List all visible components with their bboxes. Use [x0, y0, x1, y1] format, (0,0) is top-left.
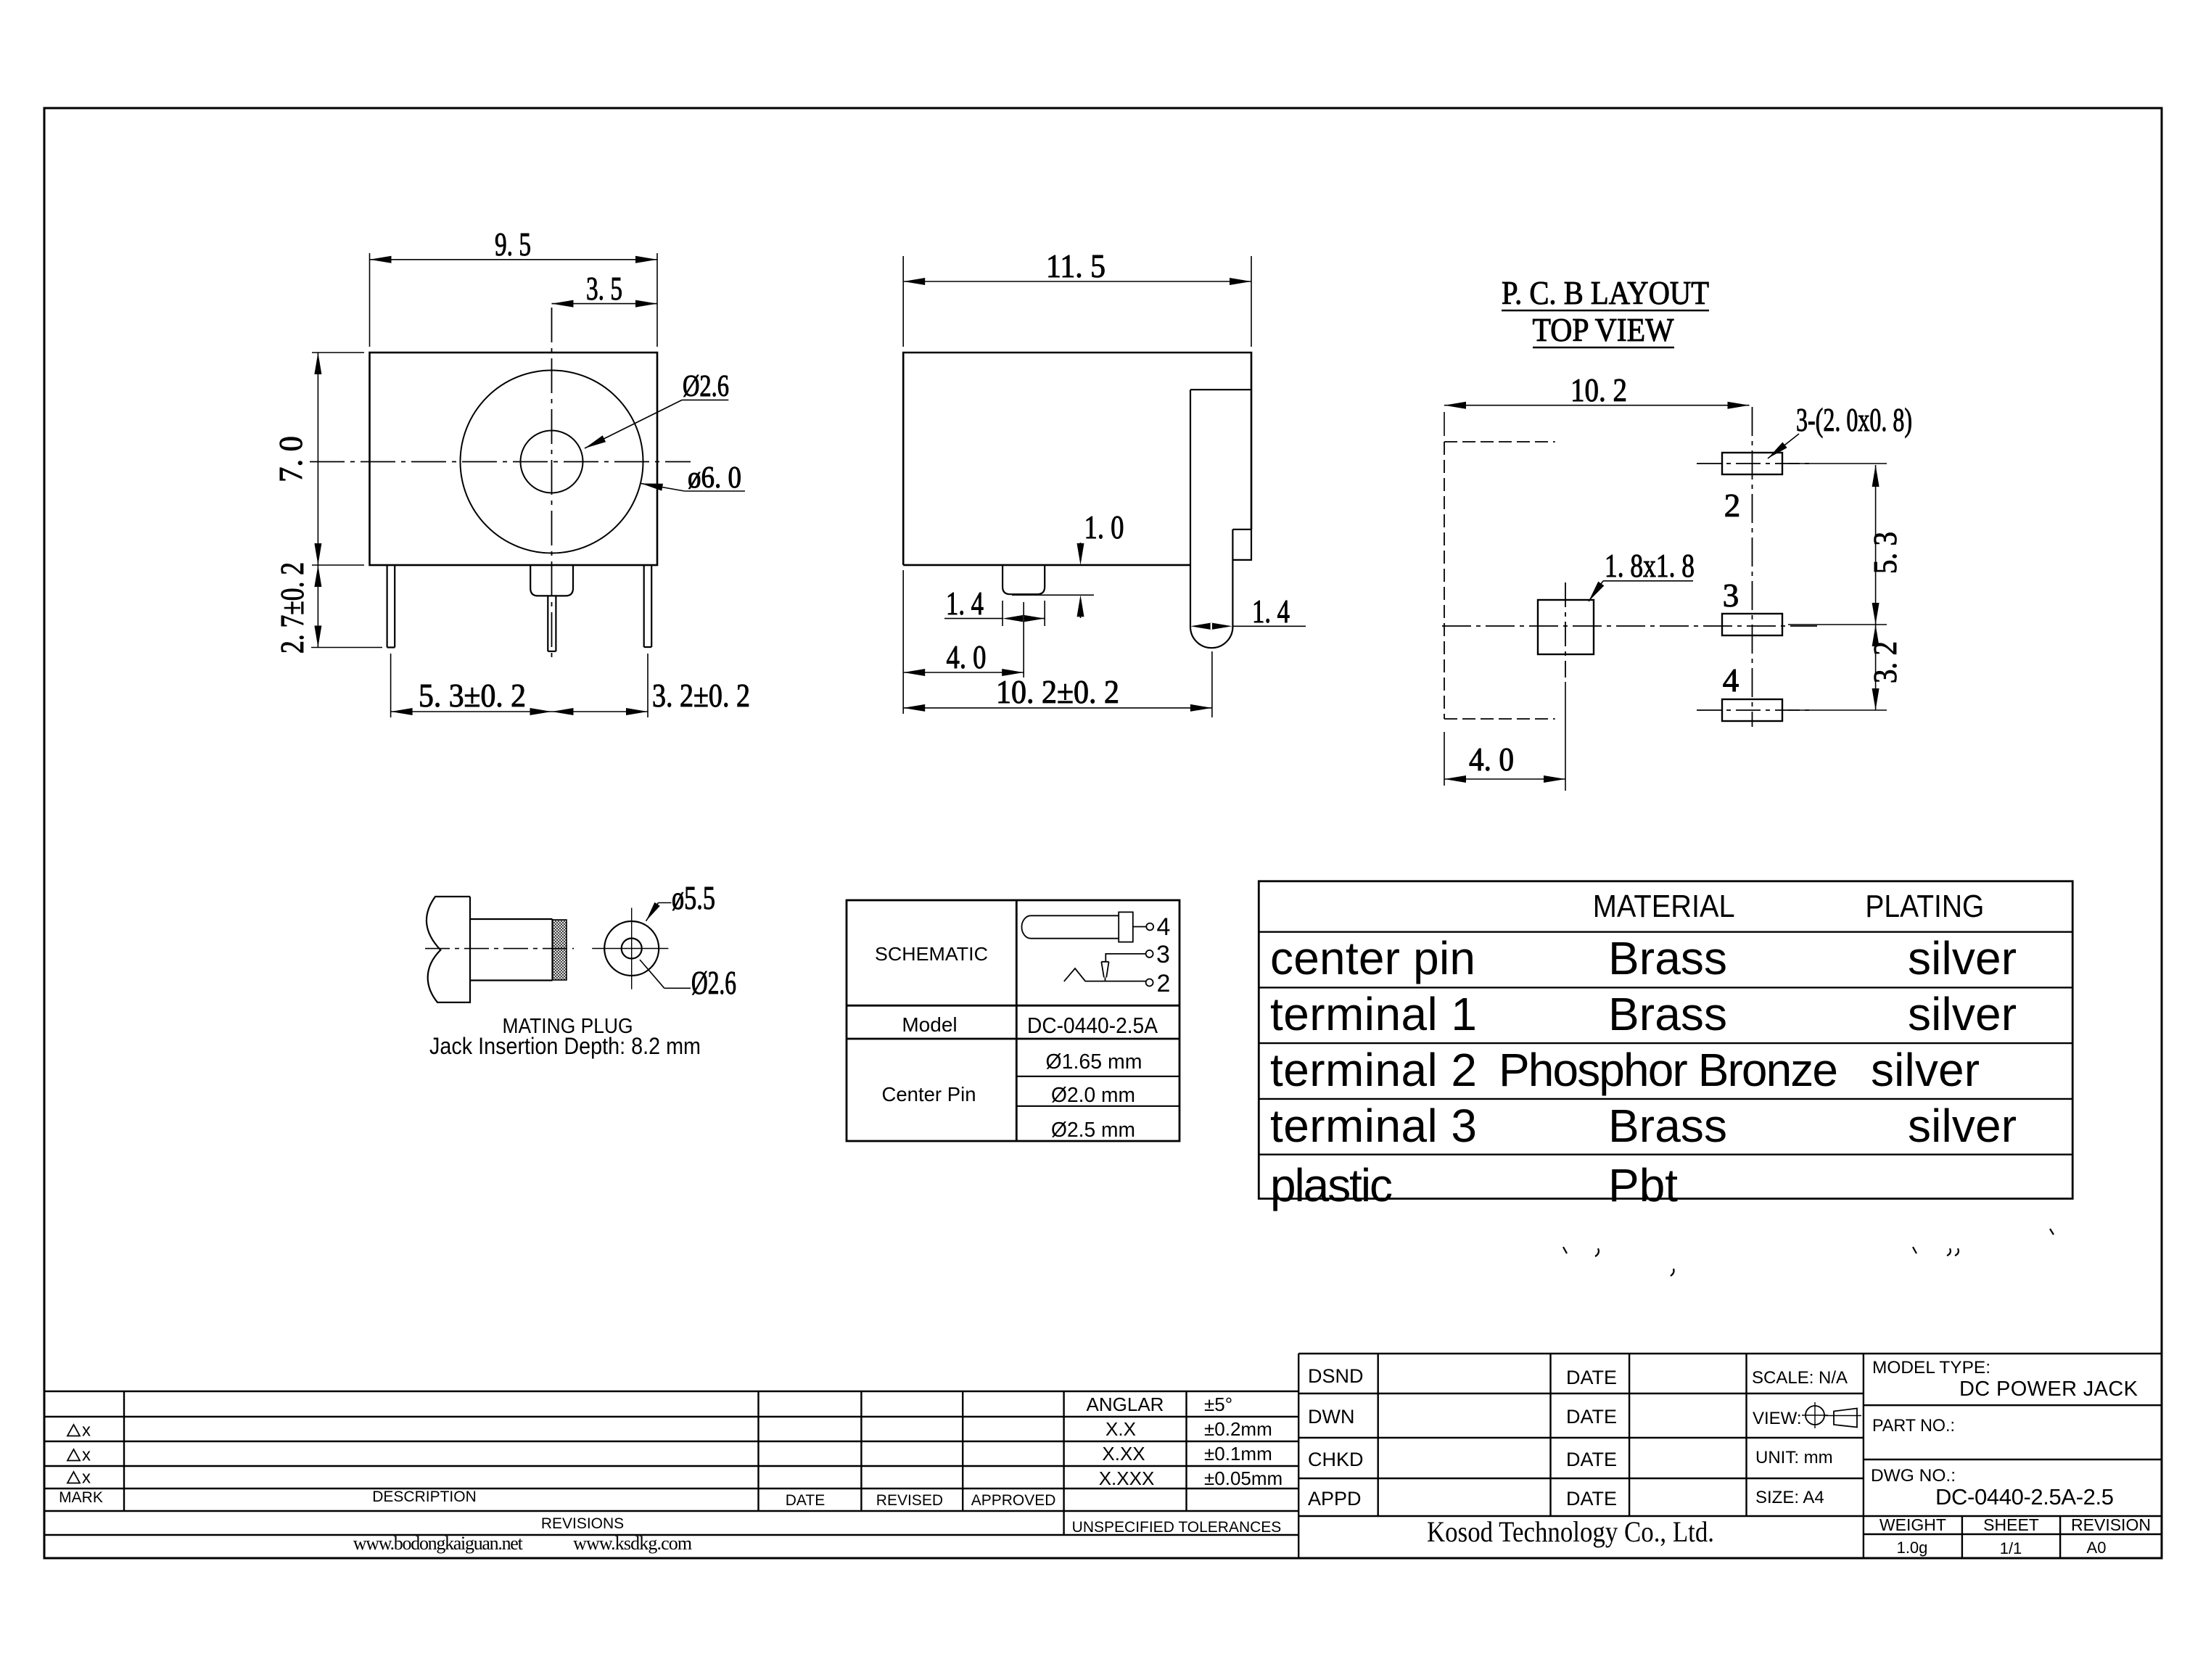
svg-text:UNIT: mm: UNIT: mm	[1755, 1448, 1833, 1467]
svg-text:1. 4: 1. 4	[946, 585, 984, 622]
svg-text:11. 5: 11. 5	[1046, 248, 1105, 284]
svg-text:2: 2	[1724, 487, 1741, 524]
svg-text:DATE: DATE	[786, 1492, 825, 1509]
svg-text:5. 3±0. 2: 5. 3±0. 2	[419, 678, 526, 714]
svg-text:DWG NO.:: DWG NO.:	[1871, 1466, 1956, 1486]
svg-text:±5°: ±5°	[1204, 1393, 1232, 1415]
svg-text:www.bodongkaiguan.net: www.bodongkaiguan.net	[353, 1533, 524, 1554]
svg-text:±0.2mm: ±0.2mm	[1204, 1418, 1272, 1440]
svg-text:4. 0: 4. 0	[947, 639, 987, 675]
svg-text:TOP VIEW: TOP VIEW	[1533, 312, 1674, 348]
svg-text:DC-0440-2.5A: DC-0440-2.5A	[1027, 1013, 1158, 1038]
svg-text:Jack Insertion Depth: 8.2 mm: Jack Insertion Depth: 8.2 mm	[429, 1033, 701, 1059]
svg-text:Ø2.5 mm: Ø2.5 mm	[1051, 1119, 1135, 1142]
svg-text:SCALE: N/A: SCALE: N/A	[1752, 1368, 1848, 1388]
svg-text:REVISED: REVISED	[876, 1492, 943, 1509]
svg-text:plastic: plastic	[1270, 1159, 1393, 1211]
svg-text:3. 2±0. 2: 3. 2±0. 2	[652, 678, 750, 714]
svg-text:Model: Model	[902, 1013, 957, 1036]
svg-text:5. 3: 5. 3	[1867, 532, 1903, 574]
svg-text:Ø2.6: Ø2.6	[691, 965, 736, 1001]
svg-text:DESCRIPTION: DESCRIPTION	[372, 1488, 477, 1505]
svg-text:Ø2.0 mm: Ø2.0 mm	[1051, 1084, 1135, 1107]
svg-text:REVISIONS: REVISIONS	[541, 1515, 624, 1532]
svg-text:1. 8x1. 8: 1. 8x1. 8	[1605, 548, 1695, 584]
svg-text:MATERIAL: MATERIAL	[1593, 889, 1735, 924]
svg-text:MODEL TYPE:: MODEL TYPE:	[1872, 1358, 1990, 1378]
svg-text:Pbt: Pbt	[1608, 1159, 1678, 1211]
svg-text:DATE: DATE	[1566, 1449, 1617, 1470]
svg-text:3: 3	[1723, 577, 1739, 614]
svg-text:silver: silver	[1908, 932, 2017, 984]
svg-text:4. 0: 4. 0	[1469, 741, 1514, 778]
svg-text:www.ksdkg.com: www.ksdkg.com	[573, 1533, 692, 1554]
svg-text:SIZE: A4: SIZE: A4	[1755, 1488, 1824, 1507]
svg-text:ANGLAR: ANGLAR	[1087, 1393, 1164, 1415]
svg-text:terminal 3: terminal 3	[1270, 1100, 1477, 1152]
svg-text:ø5.5: ø5.5	[672, 880, 715, 916]
svg-text:3. 2: 3. 2	[1867, 641, 1903, 683]
svg-text:9. 5: 9. 5	[495, 226, 531, 263]
svg-text:X.XX: X.XX	[1102, 1443, 1145, 1465]
svg-text:terminal 1: terminal 1	[1270, 988, 1477, 1040]
svg-text:DWN: DWN	[1308, 1406, 1354, 1428]
svg-text:SCHEMATIC: SCHEMATIC	[875, 943, 988, 965]
svg-text:7. 0: 7. 0	[273, 436, 309, 482]
svg-text:WEIGHT: WEIGHT	[1879, 1515, 1946, 1534]
svg-text:PLATING: PLATING	[1865, 889, 1984, 924]
svg-text:APPROVED: APPROVED	[971, 1492, 1056, 1509]
svg-text:4: 4	[1157, 913, 1171, 941]
svg-text:DSND: DSND	[1308, 1365, 1364, 1387]
svg-text:ø6. 0: ø6. 0	[688, 461, 741, 495]
svg-text:3-(2. 0x0. 8): 3-(2. 0x0. 8)	[1796, 402, 1912, 438]
svg-text:1. 4: 1. 4	[1252, 593, 1290, 630]
svg-text:Center Pin: Center Pin	[882, 1083, 976, 1105]
svg-text:Brass: Brass	[1608, 1100, 1727, 1152]
svg-text:2. 7±0. 2: 2. 7±0. 2	[274, 562, 310, 654]
svg-text:VIEW:: VIEW:	[1753, 1409, 1802, 1428]
svg-text:1/1: 1/1	[2000, 1539, 2022, 1557]
svg-text:terminal 2: terminal 2	[1270, 1044, 1477, 1096]
svg-text:A0: A0	[2087, 1539, 2107, 1557]
svg-text:3: 3	[1156, 941, 1170, 968]
svg-text:Brass: Brass	[1608, 932, 1727, 984]
svg-text:MARK: MARK	[59, 1489, 103, 1506]
svg-text:Ø1.65 mm: Ø1.65 mm	[1046, 1050, 1142, 1074]
svg-text:silver: silver	[1908, 988, 2017, 1040]
svg-text:UNSPECIFIED TOLERANCES: UNSPECIFIED TOLERANCES	[1072, 1519, 1282, 1536]
svg-text:1.0g: 1.0g	[1897, 1539, 1928, 1557]
svg-text:±0.1mm: ±0.1mm	[1204, 1443, 1272, 1465]
svg-text:1. 0: 1. 0	[1084, 509, 1124, 545]
svg-text:DC POWER JACK: DC POWER JACK	[1959, 1378, 2138, 1401]
svg-text:X.XXX: X.XXX	[1099, 1467, 1155, 1489]
svg-text:x: x	[82, 1421, 91, 1441]
svg-text:center pin: center pin	[1270, 932, 1475, 984]
svg-text:CHKD: CHKD	[1308, 1449, 1364, 1470]
svg-text:DATE: DATE	[1566, 1367, 1617, 1388]
svg-text:DC-0440-2.5A-2.5: DC-0440-2.5A-2.5	[1935, 1484, 2114, 1510]
svg-text:x: x	[82, 1468, 91, 1488]
svg-text:x: x	[82, 1446, 91, 1465]
svg-text:silver: silver	[1908, 1100, 2017, 1152]
svg-text:4: 4	[1723, 662, 1739, 699]
svg-text:±0.05mm: ±0.05mm	[1204, 1467, 1282, 1489]
svg-text:DATE: DATE	[1566, 1488, 1617, 1510]
svg-text:DATE: DATE	[1566, 1406, 1617, 1428]
svg-text:REVISION: REVISION	[2071, 1515, 2151, 1534]
svg-text:10. 2: 10. 2	[1570, 372, 1627, 408]
svg-text:Phosphor Bronze: Phosphor Bronze	[1499, 1044, 1838, 1096]
svg-text:SHEET: SHEET	[1983, 1515, 2039, 1534]
svg-text:APPD: APPD	[1308, 1488, 1362, 1510]
svg-text:PART NO.:: PART NO.:	[1872, 1416, 1955, 1436]
svg-text:silver: silver	[1871, 1044, 1980, 1096]
svg-text:Brass: Brass	[1608, 988, 1727, 1040]
svg-text:X.X: X.X	[1105, 1418, 1136, 1440]
svg-text:10. 2±0. 2: 10. 2±0. 2	[996, 674, 1119, 710]
svg-text:Ø2.6: Ø2.6	[683, 370, 729, 403]
svg-text:2: 2	[1157, 970, 1171, 997]
svg-text:Kosod Technology Co., Ltd.: Kosod Technology Co., Ltd.	[1427, 1515, 1714, 1548]
svg-text:P. C. B LAYOUT: P. C. B LAYOUT	[1502, 275, 1709, 311]
svg-text:3. 5: 3. 5	[586, 271, 622, 307]
